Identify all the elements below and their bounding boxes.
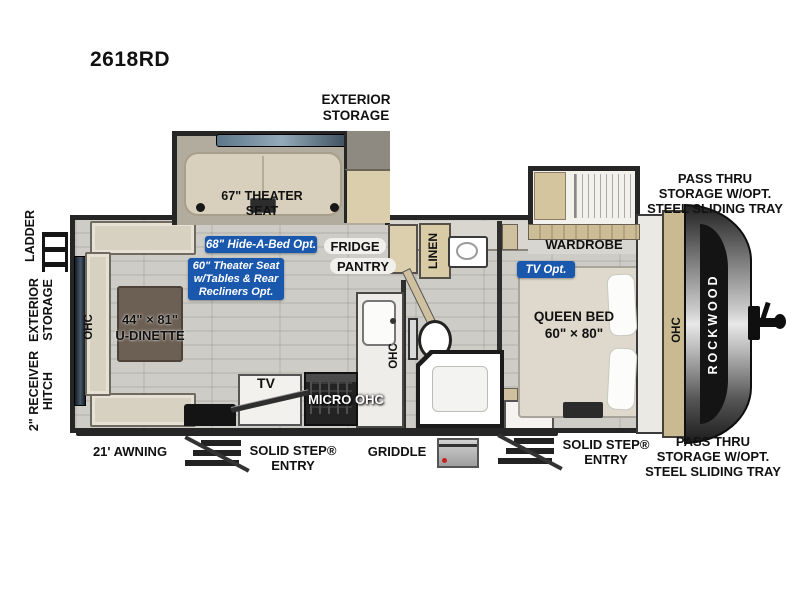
brand-decal: ROCKWOOD <box>706 259 720 389</box>
shower <box>416 350 504 428</box>
fridge-label: FRIDGE <box>324 238 386 254</box>
theater-seat-option-badge: 60" Theater Seat w/Tables & Rear Recline… <box>188 258 284 300</box>
shower-pan <box>432 366 488 412</box>
queen-bed-label: QUEEN BED 60" × 80" <box>518 308 630 342</box>
griddle <box>437 438 479 468</box>
toilet-tank <box>408 318 418 360</box>
dinette-bench-bottom <box>90 393 196 427</box>
hitch-ball <box>774 314 786 329</box>
entry-mat <box>563 402 603 418</box>
slideout-window <box>216 134 348 147</box>
u-dinette-label: 44" × 81" U-DINETTE <box>90 312 210 344</box>
micro-ohc-label: MICRO OHC <box>300 392 392 407</box>
sink-basin-icon <box>456 242 478 260</box>
pass-thru-top-label: PASS THRU STORAGE W/OPT. STEEL SLIDING T… <box>627 171 800 216</box>
exterior-storage-top-label: EXTERIOR STORAGE <box>281 92 431 123</box>
dinette-bench-top <box>90 221 196 255</box>
hide-a-bed-option-badge: 68" Hide-A-Bed Opt. <box>205 236 317 253</box>
tv-option-badge: TV Opt. <box>517 261 575 278</box>
fridge-cabinet <box>344 169 390 223</box>
shower-interior <box>420 354 500 424</box>
tv-label: TV <box>244 376 288 391</box>
theater-seat-label: 67" THEATER SEAT <box>200 189 324 219</box>
wardrobe-label: WARDROBE <box>530 237 638 252</box>
awning-label: 21' AWNING <box>76 444 184 459</box>
griddle-lid <box>439 444 477 447</box>
pantry-label: PANTRY <box>330 258 396 274</box>
solid-step-main-label: SOLID STEP® ENTRY <box>238 443 348 473</box>
awning-roller-bar <box>76 428 558 436</box>
ohc-kitchen-label: OHC <box>388 316 400 396</box>
linen-label: LINEN <box>427 206 439 296</box>
nightstand <box>502 224 518 250</box>
pillow-icon <box>606 347 637 410</box>
model-number: 2618RD <box>90 52 210 67</box>
ohc-rear-label: OHC <box>83 287 95 367</box>
griddle-label: GRIDDLE <box>365 444 429 459</box>
front-cabinet <box>636 214 664 434</box>
cupholder-icon <box>330 203 339 212</box>
wardrobe-hangers-icon <box>574 174 632 218</box>
fireplace <box>184 404 236 426</box>
ohc-front-label: OHC <box>671 290 683 370</box>
exterior-storage-bay <box>344 131 390 169</box>
floorplan-canvas: 2618RD 44" × 81" U-DINETTE OHC 67" THEAT… <box>0 0 800 600</box>
wardrobe-shelf <box>534 172 566 220</box>
solid-step-bedroom-label: SOLID STEP® ENTRY <box>551 437 661 467</box>
receiver-hitch-label: 2" RECEIVER HITCH <box>27 336 55 446</box>
griddle-knob-icon <box>442 458 447 463</box>
